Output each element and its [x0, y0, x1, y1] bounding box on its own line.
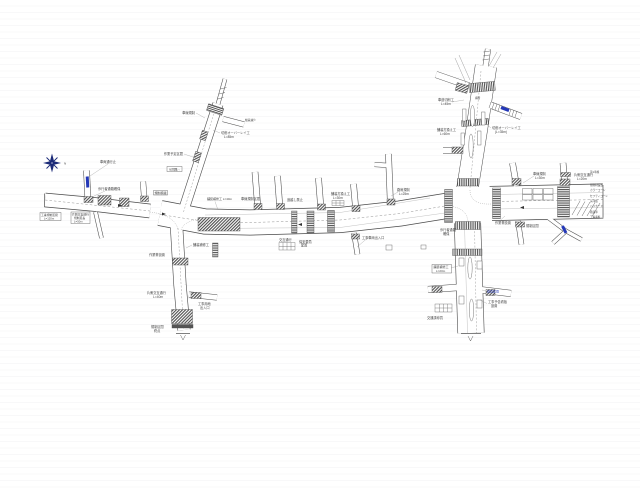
drawing-label: セフティコーン — [590, 194, 608, 198]
drawing-label: 第1車線 — [590, 170, 600, 174]
drawing-label: 規制区間 — [526, 223, 539, 228]
drawing-label: 舗装補修工 — [193, 242, 210, 247]
drawing-label: 規制標識 — [155, 190, 167, 195]
drawing-label: 作業帯設置 — [149, 252, 165, 257]
drawing-label: L=50m — [74, 220, 83, 224]
drawing-label: 設置 — [491, 303, 497, 308]
drawing-label: 配置 — [301, 243, 307, 248]
drawing-label: 作業予定区間 — [164, 151, 183, 156]
drawing-label: 出入口 — [200, 305, 210, 310]
drawing-label: L=20m — [436, 269, 446, 273]
drawing-label: 車線規制 — [182, 110, 195, 115]
drawing-label: カラーコーン — [590, 188, 606, 192]
drawing-label: 歩行者通路確保 — [98, 186, 121, 191]
drawing-label: 追越し禁止 — [287, 197, 304, 202]
compass-label: N — [64, 162, 66, 166]
drawing-label: 調査区間 — [487, 288, 499, 293]
drawing-label: 確保 — [443, 231, 450, 236]
scanline-texture — [0, 0, 640, 489]
drawing-label: L=25m — [399, 192, 409, 196]
drawing-label: 工事看板 — [590, 215, 601, 219]
drawing-label: L=40m — [153, 295, 163, 299]
drawing-label: 標識車 — [590, 210, 598, 214]
drawing-label: 車線規制区間 — [241, 196, 260, 201]
drawing-label: 矢印板 — [590, 199, 598, 203]
drawing-label: L=85m — [224, 135, 234, 139]
drawing-label: う回路→ — [169, 166, 181, 171]
drawing-label: (L=35m) — [495, 130, 507, 134]
drawing-label: L=30m — [535, 176, 545, 180]
drawing-label: 規制材設置 — [590, 183, 603, 187]
drawing-label: 車両通行止 — [100, 159, 117, 164]
plan-svg: N 車両通行止工事規制区間L=120m片側交互通行規制延長L=50m歩行者通路確… — [0, 0, 640, 489]
drawing-label: L=120m — [44, 217, 55, 221]
drawing-label: 交通誘導員 — [427, 315, 444, 320]
drawing-label: 幅員減少 — [245, 118, 256, 122]
drawing-label: 横断 — [475, 96, 481, 100]
drawing-label: 終点 — [154, 328, 161, 333]
drawing-label: L=60m — [440, 132, 450, 136]
road-works-plan-drawing: N 車両通行止工事規制区間L=120m片側交互通行規制延長L=50m歩行者通路確… — [0, 0, 640, 489]
drawing-label: バリケード — [590, 204, 603, 208]
drawing-label: L=30m — [333, 196, 343, 200]
drawing-label: L=20m — [577, 177, 587, 181]
drawing-label: 交互通行 — [279, 237, 293, 242]
drawing-label: L=45m — [441, 102, 451, 106]
blue-survey-mark-west — [86, 176, 90, 187]
drawing-label: 舗装補修工 L=40m — [207, 196, 233, 201]
drawing-label: 作業帯設置 — [495, 220, 511, 225]
drawing-label: 工事車両出入口 — [362, 235, 384, 240]
